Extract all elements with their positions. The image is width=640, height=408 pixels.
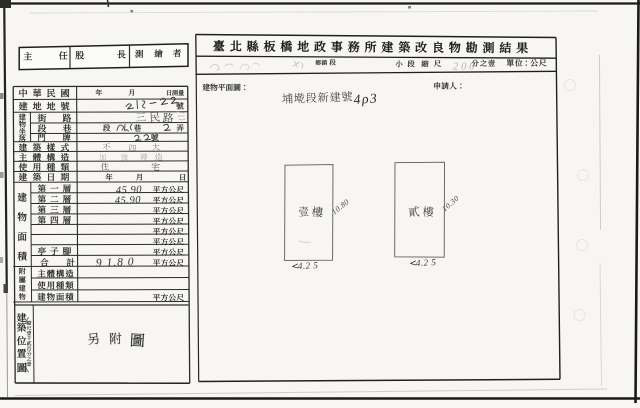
svg-text:200: 200	[453, 61, 477, 73]
svg-text:45.90: 45.90	[115, 195, 142, 207]
svg-text:9 1.8 0: 9 1.8 0	[96, 256, 135, 269]
svg-text:4.2 5: 4.2 5	[416, 257, 437, 268]
svg-text:4ρ3: 4ρ3	[353, 90, 378, 107]
svg-text:4.2 5: 4.2 5	[298, 260, 319, 271]
